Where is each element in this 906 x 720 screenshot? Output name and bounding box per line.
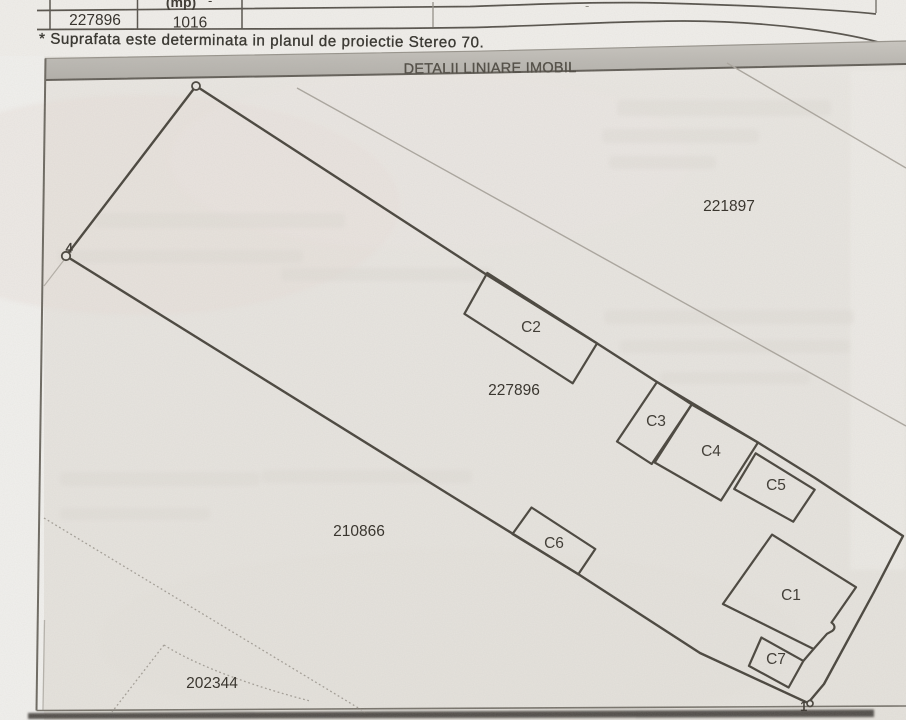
svg-text:221897: 221897 — [703, 198, 755, 215]
svg-text:227896: 227896 — [488, 382, 540, 399]
svg-text:210866: 210866 — [333, 523, 385, 540]
svg-text:202344: 202344 — [186, 675, 238, 692]
